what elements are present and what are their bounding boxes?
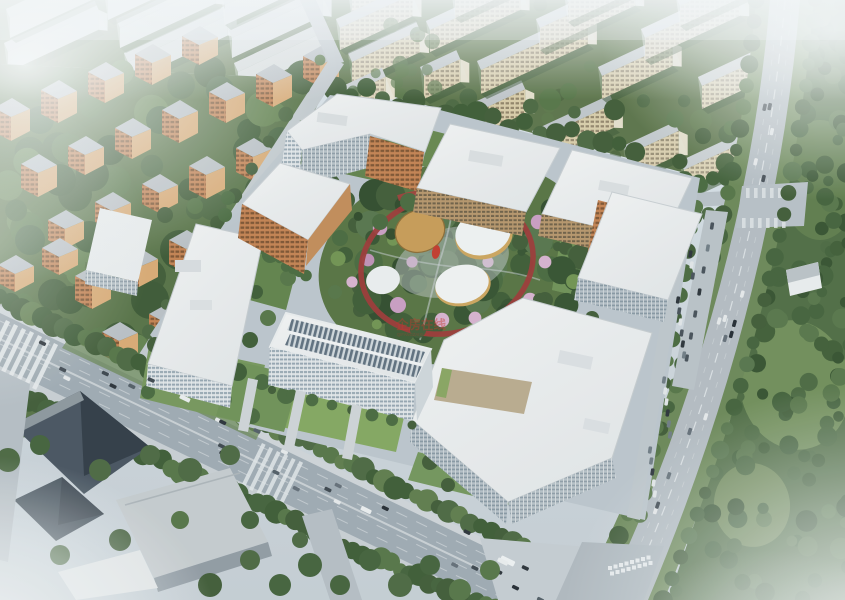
svg-text:QIFANGZAIXIAN: QIFANGZAIXIAN [397,332,429,337]
svg-text:企房在线: 企房在线 [395,317,447,332]
